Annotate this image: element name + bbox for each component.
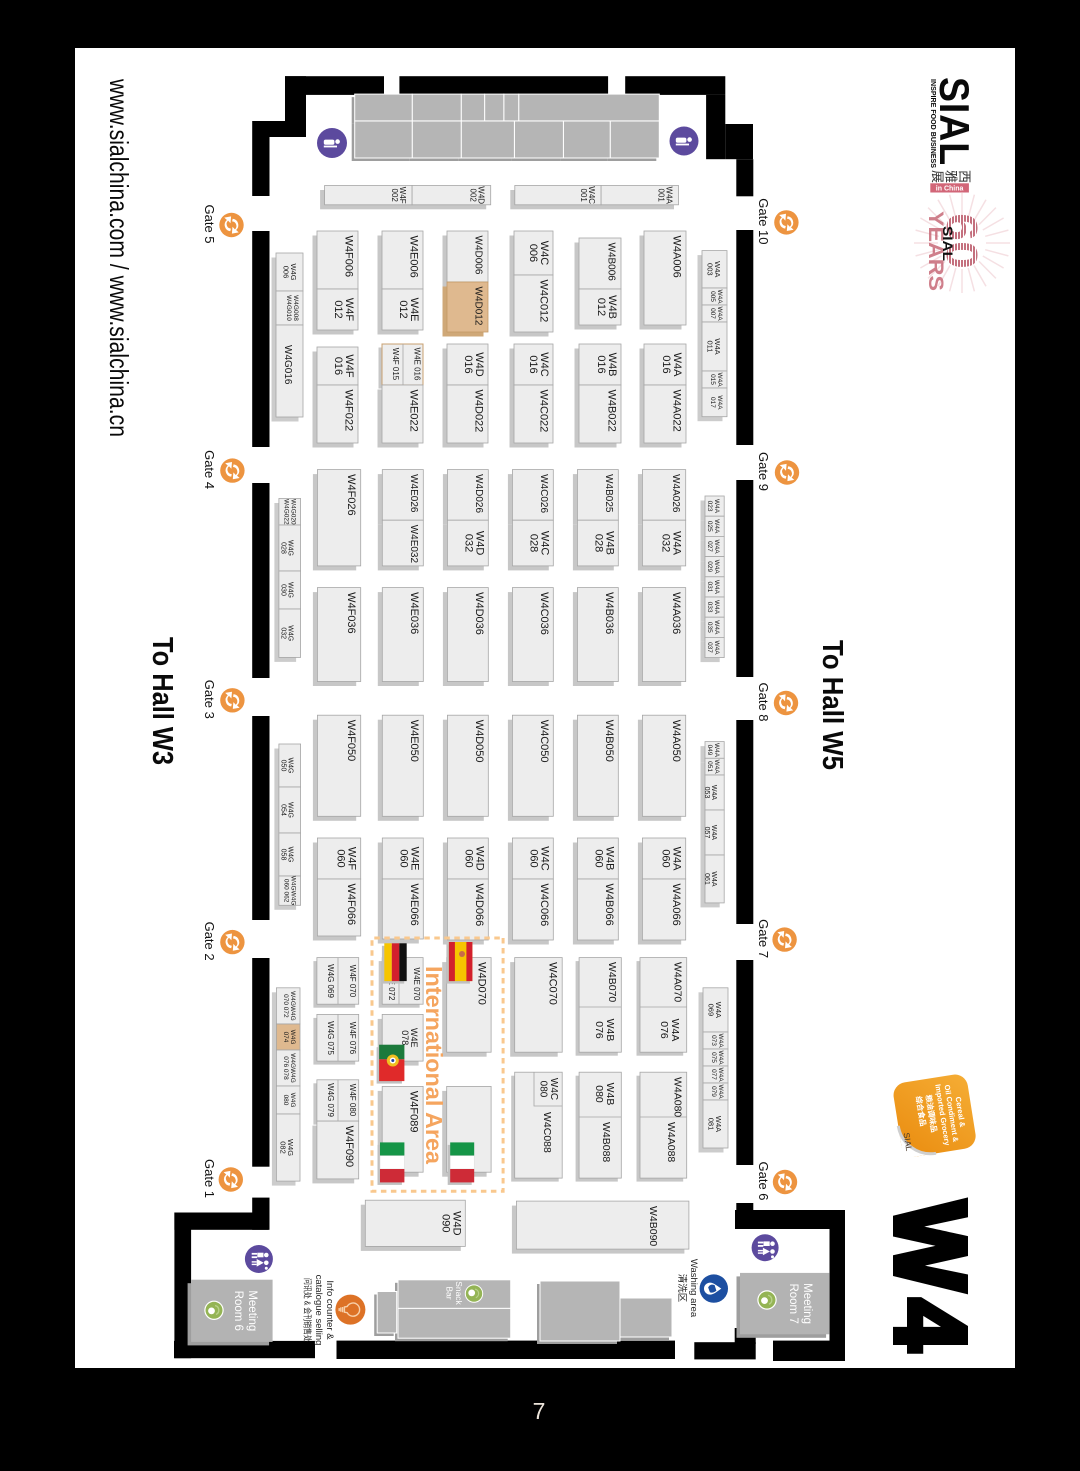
svg-text:W4GW4G: W4GW4G xyxy=(290,876,297,906)
svg-text:006: 006 xyxy=(527,244,539,262)
svg-text:W4B070: W4B070 xyxy=(606,962,618,1002)
svg-text:075: 075 xyxy=(710,1052,717,1063)
svg-text:Gate 5: Gate 5 xyxy=(202,204,217,243)
svg-text:015: 015 xyxy=(709,374,716,385)
svg-text:in China: in China xyxy=(936,185,964,192)
svg-text:W4G 079: W4G 079 xyxy=(326,1083,335,1117)
svg-text:073: 073 xyxy=(710,1035,717,1046)
svg-text:W4D022: W4D022 xyxy=(473,390,485,433)
svg-text:080: 080 xyxy=(538,1081,549,1098)
svg-text:002: 002 xyxy=(390,189,399,203)
svg-text:W4A: W4A xyxy=(713,580,720,595)
svg-text:W4F050: W4F050 xyxy=(345,720,357,762)
svg-text:060: 060 xyxy=(462,849,474,867)
svg-text:W4G: W4G xyxy=(289,1030,296,1045)
svg-text:W4B006: W4B006 xyxy=(606,243,617,282)
svg-text:W4G008: W4G008 xyxy=(292,295,299,321)
svg-text:080: 080 xyxy=(282,1095,289,1106)
svg-text:W4A: W4A xyxy=(713,499,720,514)
svg-text:005: 005 xyxy=(709,291,716,302)
svg-text:017: 017 xyxy=(709,397,716,408)
svg-text:Gate 3: Gate 3 xyxy=(202,680,217,719)
svg-text:W4F089: W4F089 xyxy=(408,1091,420,1133)
svg-text:W4E050: W4E050 xyxy=(408,720,420,762)
svg-text:080: 080 xyxy=(593,1085,605,1103)
svg-text:W4F036: W4F036 xyxy=(345,592,357,634)
svg-text:W4A036: W4A036 xyxy=(670,592,682,634)
svg-text:090: 090 xyxy=(439,1214,451,1232)
svg-text:W4A: W4A xyxy=(717,1067,724,1082)
svg-text:SIAL: SIAL xyxy=(940,226,956,261)
svg-text:058: 058 xyxy=(280,849,287,861)
svg-text:W4F 080: W4F 080 xyxy=(348,1084,357,1117)
svg-text:W4C: W4C xyxy=(548,1078,559,1100)
svg-text:001: 001 xyxy=(657,189,666,203)
svg-text:Room 7: Room 7 xyxy=(787,1283,799,1323)
svg-text:032: 032 xyxy=(660,534,672,552)
svg-text:Gate 9: Gate 9 xyxy=(756,452,771,491)
svg-text:W4A: W4A xyxy=(713,519,720,534)
svg-text:W4F090: W4F090 xyxy=(343,1126,355,1168)
svg-text:007: 007 xyxy=(709,308,716,319)
svg-text:Gate 6: Gate 6 xyxy=(756,1161,771,1200)
svg-text:Washing area: Washing area xyxy=(688,1259,699,1318)
svg-text:catalogue selling: catalogue selling xyxy=(313,1275,324,1346)
svg-text:To Hall W3: To Hall W3 xyxy=(146,637,178,765)
svg-text:问讯处 & 会刊销售处: 问讯处 & 会刊销售处 xyxy=(303,1278,313,1342)
svg-text:Snack: Snack xyxy=(454,1281,464,1305)
svg-text:W4E 070: W4E 070 xyxy=(412,968,421,1001)
svg-text:W4D050: W4D050 xyxy=(473,720,485,763)
svg-text:011: 011 xyxy=(706,341,715,353)
svg-text:INSPIRE FOOD BUSINESS: INSPIRE FOOD BUSINESS xyxy=(929,79,938,168)
svg-text:W4G: W4G xyxy=(287,582,294,598)
svg-text:W4B036: W4B036 xyxy=(603,592,615,634)
svg-text:078: 078 xyxy=(400,1030,410,1045)
svg-text:053: 053 xyxy=(703,787,710,799)
svg-text:W4G: W4G xyxy=(287,758,294,774)
svg-text:W4C036: W4C036 xyxy=(538,592,550,635)
svg-text:012: 012 xyxy=(595,298,607,316)
svg-text:028: 028 xyxy=(527,534,539,552)
svg-text:076 078: 076 078 xyxy=(282,1056,289,1080)
svg-text:W4G010: W4G010 xyxy=(285,295,292,321)
svg-text:W4D026: W4D026 xyxy=(473,474,484,513)
svg-text:W4G: W4G xyxy=(287,802,294,818)
svg-text:W4B050: W4B050 xyxy=(603,720,615,762)
svg-text:016: 016 xyxy=(527,355,539,373)
svg-text:079: 079 xyxy=(710,1086,717,1097)
svg-text:W4A088: W4A088 xyxy=(665,1122,677,1162)
svg-text:060: 060 xyxy=(660,849,672,867)
svg-text:W4F022: W4F022 xyxy=(343,390,355,432)
svg-text:W4GW4G: W4GW4G xyxy=(289,991,296,1021)
svg-text:028: 028 xyxy=(280,542,287,554)
svg-text:016: 016 xyxy=(660,355,672,373)
svg-text:050: 050 xyxy=(280,760,287,772)
svg-text:029: 029 xyxy=(706,561,713,572)
svg-text:W4A050: W4A050 xyxy=(670,720,682,762)
svg-text:W4G: W4G xyxy=(287,847,294,863)
svg-text:展: 展 xyxy=(930,170,945,183)
svg-text:032: 032 xyxy=(462,534,474,552)
svg-text:W4A066: W4A066 xyxy=(670,884,682,926)
svg-text:W4D012: W4D012 xyxy=(473,287,484,326)
svg-text:W4G: W4G xyxy=(287,625,294,641)
svg-text:Meeting: Meeting xyxy=(246,1290,258,1331)
svg-text:027: 027 xyxy=(706,541,713,552)
svg-text:Gate 4: Gate 4 xyxy=(202,450,217,489)
svg-text:W4G: W4G xyxy=(287,540,294,556)
svg-text:054: 054 xyxy=(280,804,287,816)
svg-text:W4B025: W4B025 xyxy=(603,474,614,513)
svg-text:W4D006: W4D006 xyxy=(473,236,484,275)
svg-text:W4G020: W4G020 xyxy=(290,499,297,525)
svg-text:W4D070: W4D070 xyxy=(476,962,488,1005)
svg-text:076: 076 xyxy=(658,1021,670,1039)
svg-text:003: 003 xyxy=(706,263,715,276)
svg-text:W4F066: W4F066 xyxy=(345,884,357,926)
svg-text:016: 016 xyxy=(332,357,344,375)
svg-text:W4E066: W4E066 xyxy=(408,884,420,926)
svg-text:W4C012: W4C012 xyxy=(538,280,550,323)
svg-text:016: 016 xyxy=(595,355,607,373)
svg-text:W4A022: W4A022 xyxy=(671,390,683,432)
svg-text:W4E036: W4E036 xyxy=(408,592,420,634)
svg-text:076: 076 xyxy=(593,1021,605,1039)
svg-text:032: 032 xyxy=(280,627,287,639)
svg-text:037: 037 xyxy=(706,642,713,653)
svg-text:Meeting: Meeting xyxy=(801,1283,813,1324)
svg-text:025: 025 xyxy=(706,521,713,532)
svg-text:W4E032: W4E032 xyxy=(408,525,419,564)
svg-text:W4F006: W4F006 xyxy=(343,236,355,278)
svg-text:W4A: W4A xyxy=(717,1084,724,1099)
svg-text:077: 077 xyxy=(710,1069,717,1080)
svg-text:012: 012 xyxy=(332,300,344,318)
svg-text:W4A: W4A xyxy=(710,785,717,801)
svg-text:060: 060 xyxy=(397,849,409,867)
svg-text:International Area: International Area xyxy=(421,966,447,1164)
svg-text:060: 060 xyxy=(592,849,604,867)
svg-text:W4A: W4A xyxy=(713,620,720,635)
svg-text:W4A006: W4A006 xyxy=(671,236,683,278)
svg-text:W4C088: W4C088 xyxy=(541,1112,553,1153)
svg-text:清洗区: 清洗区 xyxy=(676,1274,688,1303)
svg-text:W4A070: W4A070 xyxy=(672,962,684,1002)
svg-text:Info counter &: Info counter & xyxy=(324,1280,335,1340)
svg-text:070 072: 070 072 xyxy=(282,994,289,1018)
svg-text:Gate 7: Gate 7 xyxy=(756,919,771,958)
svg-text:W4C070: W4C070 xyxy=(547,962,559,1005)
svg-text:Gate 8: Gate 8 xyxy=(756,682,771,721)
svg-text:W4C022: W4C022 xyxy=(538,390,550,433)
svg-text:W4D066: W4D066 xyxy=(473,884,485,927)
svg-text:060: 060 xyxy=(527,849,539,867)
svg-text:W4F 076: W4F 076 xyxy=(348,1022,357,1055)
svg-text:W4A: W4A xyxy=(713,560,720,575)
svg-text:7: 7 xyxy=(533,1398,546,1424)
svg-text:W4C026: W4C026 xyxy=(538,474,549,513)
svg-text:051: 051 xyxy=(706,761,713,772)
svg-text:W4F 070: W4F 070 xyxy=(348,965,357,998)
svg-text:W4A: W4A xyxy=(716,395,723,410)
svg-text:012: 012 xyxy=(397,300,409,318)
svg-text:057: 057 xyxy=(703,827,710,839)
svg-text:060 062: 060 062 xyxy=(283,879,290,903)
svg-text:W4A: W4A xyxy=(710,825,717,841)
svg-text:W4G 069: W4G 069 xyxy=(326,964,335,998)
svg-text:W4A: W4A xyxy=(713,640,720,655)
svg-text:W4D036: W4D036 xyxy=(473,592,485,635)
svg-text:W4G016: W4G016 xyxy=(282,345,293,385)
svg-text:Gate 2: Gate 2 xyxy=(202,922,217,961)
svg-text:074: 074 xyxy=(282,1032,289,1043)
svg-text:W4B066: W4B066 xyxy=(603,884,615,926)
svg-text:W4E 016: W4E 016 xyxy=(413,348,422,381)
svg-text:W4B090: W4B090 xyxy=(647,1206,659,1246)
svg-text:031: 031 xyxy=(706,581,713,592)
svg-text:049: 049 xyxy=(706,745,713,756)
svg-text:W4A: W4A xyxy=(710,871,717,887)
svg-text:W4G: W4G xyxy=(289,1093,296,1108)
svg-text:W4B088: W4B088 xyxy=(600,1122,612,1162)
svg-text:W4A: W4A xyxy=(713,600,720,615)
svg-text:W4C066: W4C066 xyxy=(538,884,550,927)
svg-text:W4F 015: W4F 015 xyxy=(391,348,400,381)
svg-text:W4A: W4A xyxy=(717,1033,724,1048)
svg-text:W4B022: W4B022 xyxy=(606,390,618,432)
svg-text:Room 6: Room 6 xyxy=(232,1291,244,1331)
svg-text:www.sialchina.com / www.sialch: www.sialchina.com / www.sialchina.cn xyxy=(104,78,134,437)
svg-text:W4A: W4A xyxy=(713,539,720,554)
svg-text:028: 028 xyxy=(592,534,604,552)
svg-text:035: 035 xyxy=(706,622,713,633)
svg-text:081: 081 xyxy=(707,1118,716,1131)
svg-text:082: 082 xyxy=(279,1141,288,1154)
svg-text:061: 061 xyxy=(703,873,710,885)
svg-text:W4A: W4A xyxy=(713,743,720,758)
svg-text:030: 030 xyxy=(280,584,287,596)
svg-text:W4GW4G: W4GW4G xyxy=(289,1053,296,1083)
svg-text:W4: W4 xyxy=(874,1201,986,1359)
svg-text:069: 069 xyxy=(707,1004,716,1017)
svg-text:W4G022: W4G022 xyxy=(283,499,290,525)
svg-text:W4G 075: W4G 075 xyxy=(326,1021,335,1055)
svg-text:016: 016 xyxy=(462,355,474,373)
svg-text:W4E006: W4E006 xyxy=(408,236,420,278)
svg-text:060: 060 xyxy=(335,849,347,867)
svg-text:W4E026: W4E026 xyxy=(408,474,419,513)
svg-text:To Hall W5: To Hall W5 xyxy=(816,640,848,770)
svg-text:006: 006 xyxy=(282,266,291,279)
svg-text:002: 002 xyxy=(469,189,478,203)
svg-text:Bar: Bar xyxy=(445,1286,455,1299)
svg-text:Gate 10: Gate 10 xyxy=(756,198,771,244)
svg-text:W4A080: W4A080 xyxy=(672,1077,684,1117)
svg-text:W4A: W4A xyxy=(713,760,720,775)
svg-text:Gate 1: Gate 1 xyxy=(202,1159,217,1198)
svg-text:033: 033 xyxy=(706,602,713,613)
svg-text:W4A026: W4A026 xyxy=(670,474,681,513)
svg-text:W4E022: W4E022 xyxy=(408,390,420,432)
svg-text:W4A: W4A xyxy=(717,1050,724,1065)
svg-text:W4C050: W4C050 xyxy=(538,720,550,763)
svg-text:W4F026: W4F026 xyxy=(345,474,357,516)
svg-text:001: 001 xyxy=(579,189,588,203)
svg-text:W4A: W4A xyxy=(716,372,723,387)
svg-text:023: 023 xyxy=(706,501,713,512)
svg-text:W4A: W4A xyxy=(716,306,723,321)
svg-text:W4A: W4A xyxy=(716,289,723,304)
